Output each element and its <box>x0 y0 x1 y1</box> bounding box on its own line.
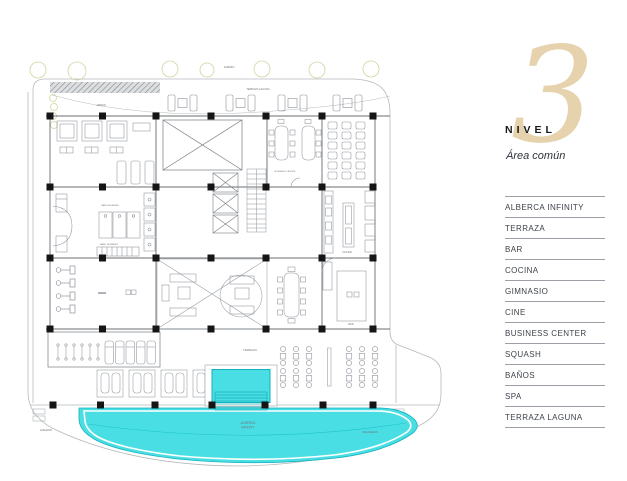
area-label: Área común <box>506 150 565 162</box>
amenity-label: CINE <box>505 307 526 317</box>
label-terraza: TERRAZA <box>243 348 257 352</box>
level-panel: 3 NIVEL Área común ALBERCA INFINITY TERR… <box>505 42 605 442</box>
spa-room <box>57 121 154 184</box>
building-walls <box>46 116 390 329</box>
amenity-row: SQUASH <box>505 343 605 364</box>
lounge-area <box>157 259 267 329</box>
amenity-row: BUSINESS CENTER <box>505 322 605 343</box>
amenity-label: BAR <box>505 244 523 254</box>
label-bano-mujeres: BAÑO MUJERES <box>101 204 119 207</box>
banos-room <box>53 193 155 256</box>
label-andador: ANDADOR <box>40 429 52 432</box>
cine-room <box>328 122 365 179</box>
label-jardin-left: JARDIN <box>96 103 105 107</box>
garden-hatch <box>50 82 160 93</box>
floor-plan: JARDIN TERRAZA LAGUNA JARDIN BUSINESS CE… <box>0 0 460 476</box>
amenity-row: ALBERCA INFINITY <box>505 196 605 217</box>
amenity-row: CINE <box>505 301 605 322</box>
terraza-laguna-furniture <box>168 95 362 111</box>
label-alberca-2: INFINITY <box>241 426 255 430</box>
amenity-label: SQUASH <box>505 349 541 359</box>
trees <box>30 61 379 129</box>
label-alberca-1: ALBERCA <box>241 421 257 425</box>
amenity-row: GIMNASIO <box>505 280 605 301</box>
amenity-label: ALBERCA INFINITY <box>505 202 584 212</box>
amenity-label: BUSINESS CENTER <box>505 328 587 338</box>
divider <box>505 427 605 428</box>
amenity-label: COCINA <box>505 265 539 275</box>
stairs <box>247 169 266 232</box>
label-regaderas: REGADERAS <box>362 431 377 434</box>
amenity-label: GIMNASIO <box>505 286 548 296</box>
squash-court <box>163 120 242 170</box>
amenity-row: TERRAZA <box>505 217 605 238</box>
cocina-room <box>324 191 375 253</box>
label-jardin-top: JARDIN <box>224 65 235 69</box>
amenity-label: TERRAZA LAGUNA <box>505 412 583 422</box>
label-business-center: BUSINESS CENTER <box>275 171 296 173</box>
amenity-row: BAR <box>505 238 605 259</box>
amenities-list: ALBERCA INFINITY TERRAZA BAR COCINA GIMN… <box>505 196 605 428</box>
gimnasio-room <box>56 266 136 313</box>
business-center-room <box>269 120 321 188</box>
amenity-row: TERRAZA LAGUNA <box>505 406 605 427</box>
amenity-label: BAÑOS <box>505 370 535 380</box>
amenity-label: SPA <box>505 391 522 401</box>
level-label: NIVEL <box>505 124 556 136</box>
steps-pool-water <box>212 370 270 403</box>
amenity-row: BAÑOS <box>505 364 605 385</box>
page: JARDIN TERRAZA LAGUNA JARDIN BUSINESS CE… <box>0 0 627 476</box>
bar-room <box>322 258 366 321</box>
label-cocina: COCINA <box>342 250 352 254</box>
amenity-row: COCINA <box>505 259 605 280</box>
level-hero: 3 NIVEL Área común <box>505 42 605 192</box>
amenity-row: SPA <box>505 385 605 406</box>
floor-plan-svg: JARDIN TERRAZA LAGUNA JARDIN BUSINESS CE… <box>0 0 460 476</box>
columns <box>47 113 377 409</box>
amenity-label: TERRAZA <box>505 223 545 233</box>
label-bar: BAR <box>348 322 353 326</box>
dining-area <box>278 267 306 323</box>
elevators <box>213 173 238 233</box>
label-terraza-laguna: TERRAZA LAGUNA <box>246 87 270 91</box>
label-bano-hombres: BAÑO HOMBRES <box>100 243 118 246</box>
level-number: 3 <box>511 30 595 162</box>
gimnasio-annex <box>48 332 160 367</box>
